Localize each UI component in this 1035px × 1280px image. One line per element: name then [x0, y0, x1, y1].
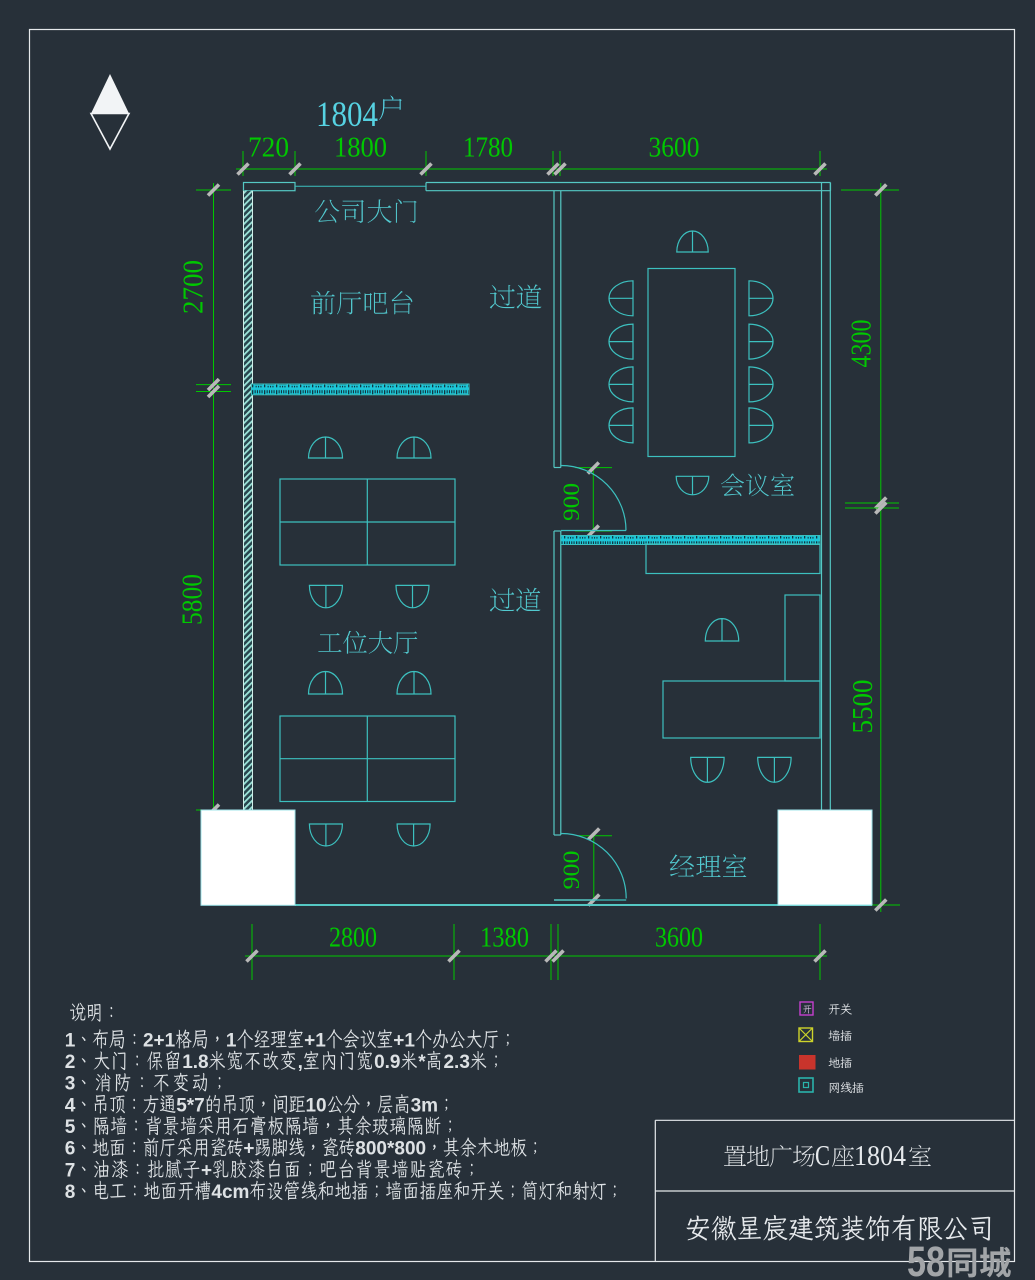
- svg-text:720: 720: [248, 133, 289, 164]
- svg-text:+1: +1: [304, 1031, 326, 1052]
- svg-text:0.9: 0.9: [374, 1052, 400, 1073]
- svg-text:8: 8: [65, 1182, 76, 1203]
- svg-text:3m: 3m: [411, 1095, 439, 1116]
- svg-text:2.3: 2.3: [444, 1052, 470, 1073]
- svg-text:2: 2: [65, 1052, 76, 1073]
- svg-text:2800: 2800: [329, 923, 377, 954]
- svg-text:1: 1: [226, 1031, 237, 1052]
- svg-text:10: 10: [306, 1095, 327, 1116]
- svg-text:2700: 2700: [179, 260, 210, 314]
- svg-text:5: 5: [65, 1117, 76, 1138]
- svg-text:1804: 1804: [854, 1141, 906, 1172]
- svg-text:1780: 1780: [463, 133, 513, 164]
- svg-text:3600: 3600: [649, 133, 700, 164]
- svg-text:,: ,: [298, 1052, 303, 1073]
- svg-text:4cm: 4cm: [211, 1182, 249, 1203]
- svg-text:5800: 5800: [178, 574, 209, 625]
- svg-text:3: 3: [65, 1074, 76, 1095]
- svg-text:1380: 1380: [480, 923, 529, 954]
- svg-text:1800: 1800: [334, 133, 387, 164]
- svg-text:5500: 5500: [848, 680, 879, 734]
- svg-text:800*800: 800*800: [355, 1139, 426, 1160]
- svg-text:900: 900: [559, 851, 584, 890]
- svg-text:3600: 3600: [655, 923, 703, 954]
- svg-text:C: C: [815, 1141, 830, 1172]
- svg-text:*: *: [418, 1052, 426, 1073]
- svg-text:1: 1: [65, 1031, 76, 1052]
- svg-text:1804: 1804: [316, 94, 378, 134]
- svg-text:6: 6: [65, 1139, 76, 1160]
- svg-text:+: +: [243, 1139, 254, 1160]
- svg-text:+: +: [201, 1160, 212, 1181]
- svg-text:1.8: 1.8: [182, 1052, 208, 1073]
- svg-text:5*7: 5*7: [176, 1095, 205, 1116]
- svg-text:58: 58: [907, 1238, 945, 1280]
- svg-text:+1: +1: [393, 1031, 415, 1052]
- svg-text:4300: 4300: [847, 320, 878, 368]
- svg-text:4: 4: [65, 1095, 76, 1116]
- svg-text:2+1: 2+1: [143, 1031, 176, 1052]
- svg-text:900: 900: [559, 483, 584, 521]
- svg-text:7: 7: [65, 1160, 76, 1181]
